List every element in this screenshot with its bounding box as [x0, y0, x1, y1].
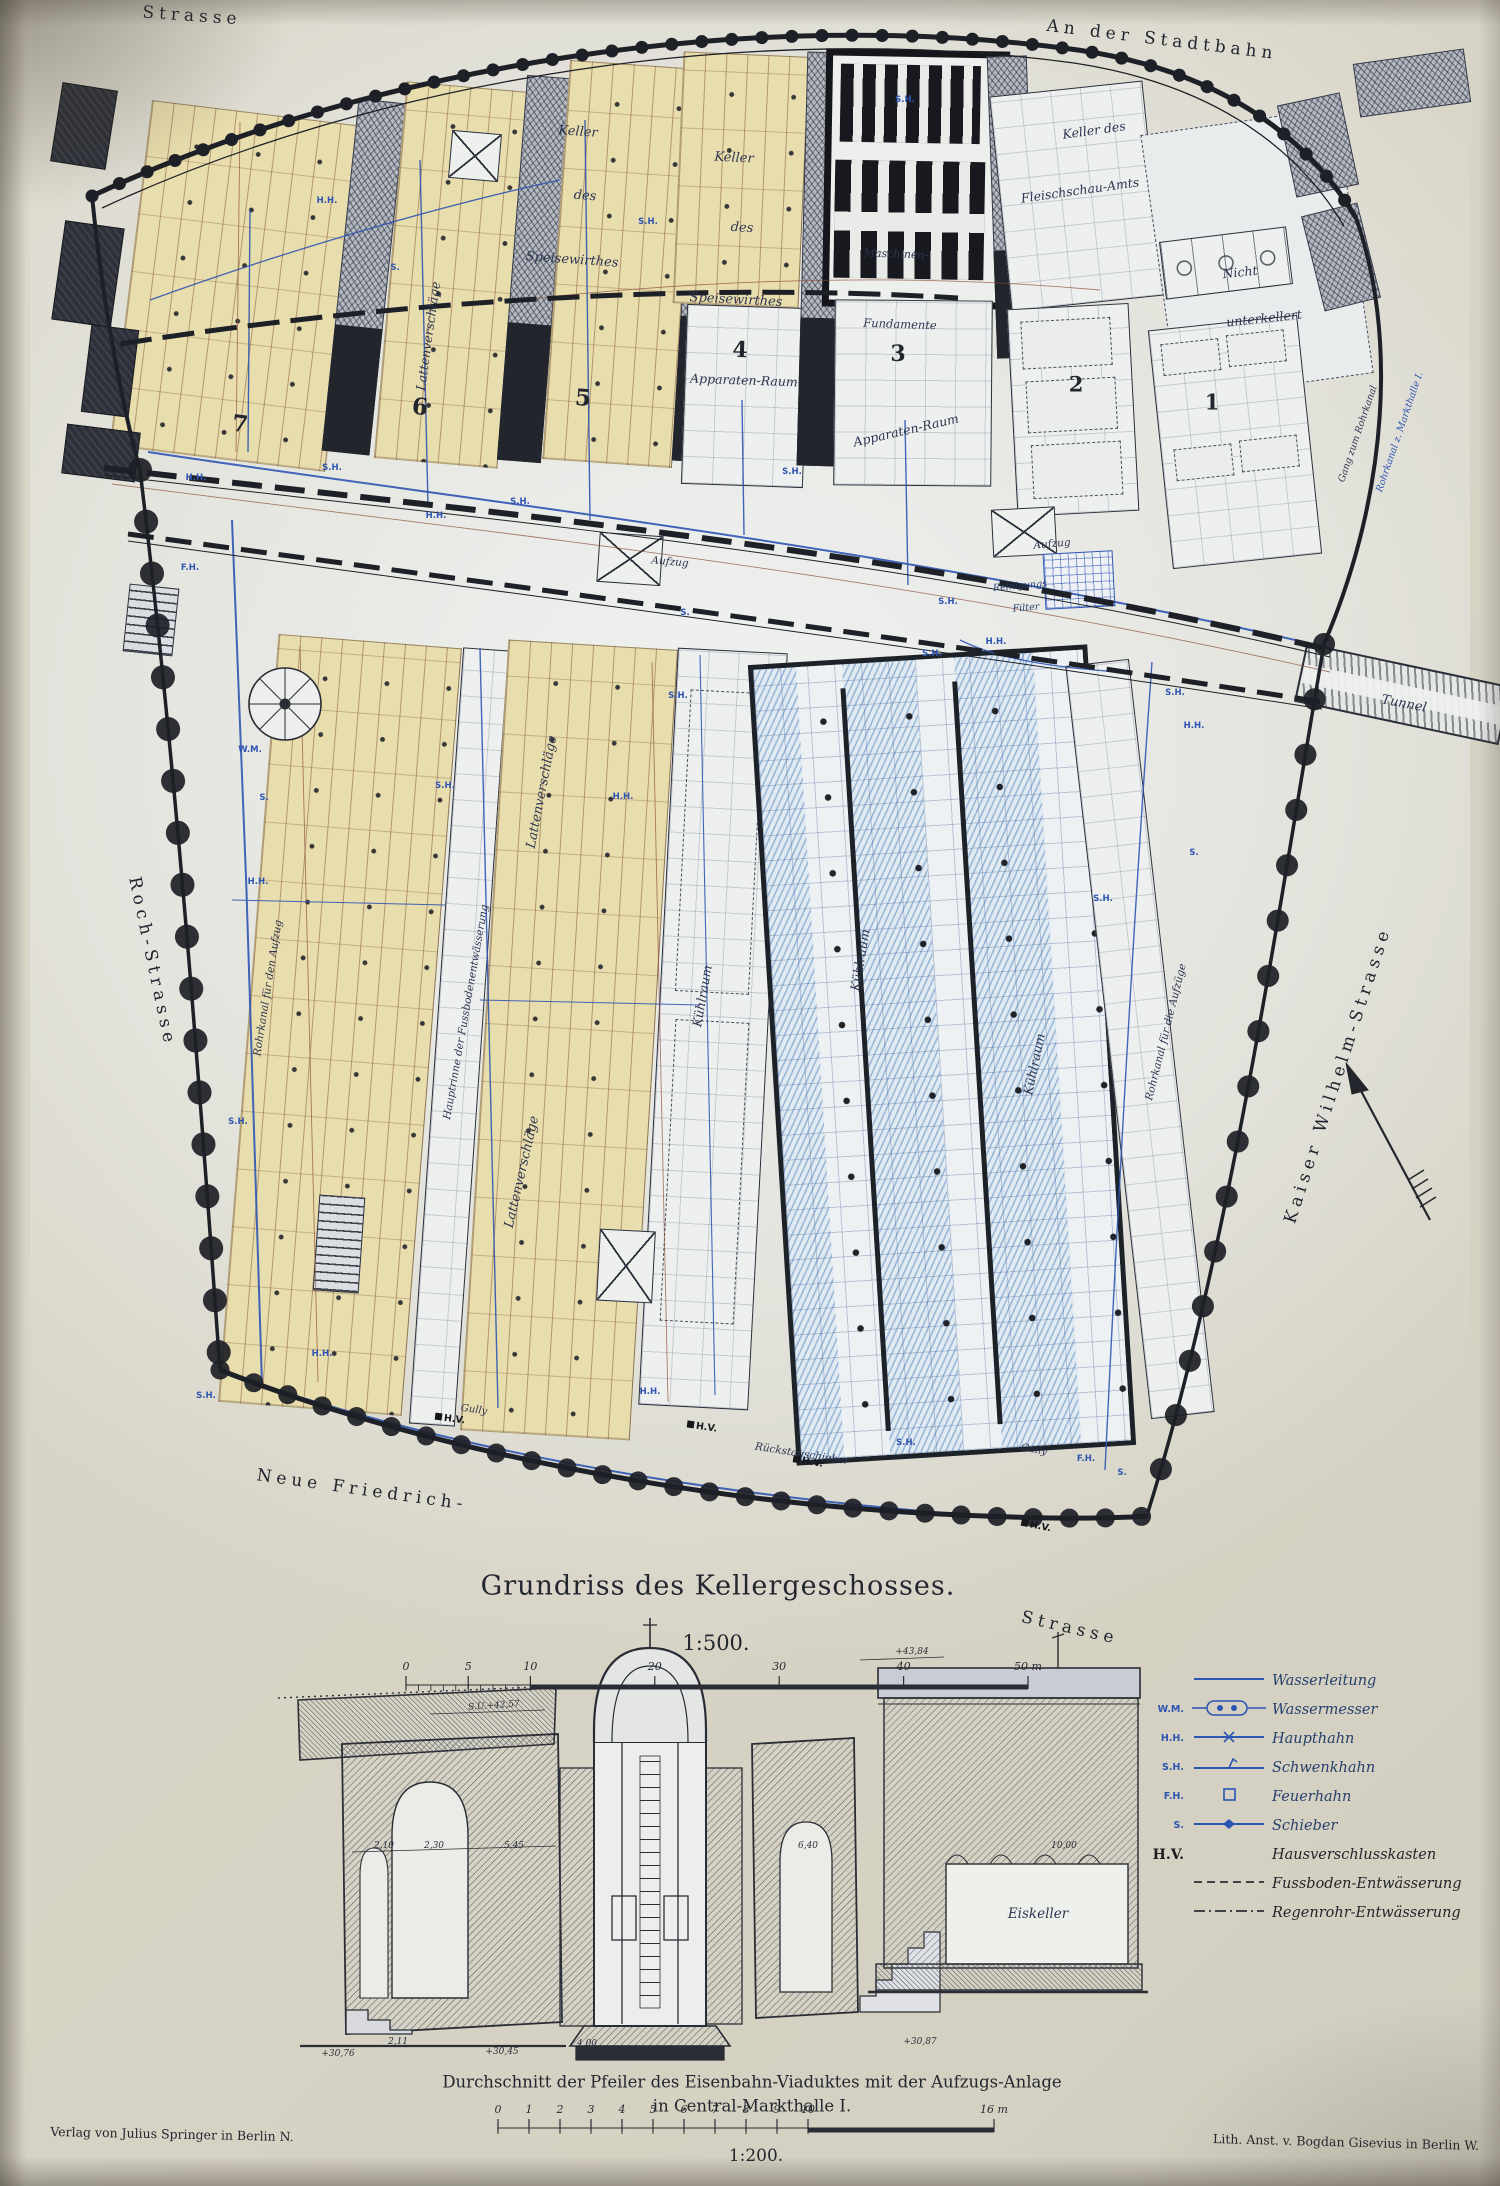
legend-symbol-dash — [1190, 1873, 1272, 1895]
pipe-marker-sh: S.H. — [228, 1117, 248, 1127]
label-eiskeller: Eiskeller — [1008, 1906, 1068, 1922]
room-number-1: 1 — [1205, 390, 1220, 415]
label-keller-1: Keller — [558, 123, 598, 141]
elevation-su-42-57: S.U.+42,57 — [468, 1699, 520, 1713]
svg-text:6: 6 — [681, 2103, 688, 2116]
pipe-marker-wm: W.M. — [238, 745, 262, 755]
pipe-marker-sh: S.H. — [322, 463, 342, 473]
svg-text:10: 10 — [801, 2103, 815, 2116]
plan-scale-text: 1:500. — [682, 1631, 749, 1655]
label-speisewirthes-2: Speisewirthes — [689, 290, 783, 310]
dim-4-00: 4,00 — [577, 2039, 597, 2049]
marker-hv-1: H.V. — [686, 1419, 718, 1434]
pipe-marker-fh: F.H. — [1077, 1454, 1095, 1464]
legend-row: Fussboden-Entwässerung — [1146, 1869, 1482, 1898]
svg-text:10: 10 — [523, 1660, 537, 1673]
room-number-5: 5 — [574, 384, 592, 412]
legend-row: S.H.Schwenkhahn — [1146, 1753, 1482, 1782]
label-kuehlraum-3: Kühlraum — [1020, 1032, 1048, 1096]
legend-abbr: H.H. — [1146, 1733, 1190, 1744]
street-roch-strasse: Roch-Strasse — [124, 875, 180, 1049]
label-speisewirthes-1: Speisewirthes — [525, 249, 619, 270]
dim-5-45: 5,45 — [504, 1841, 524, 1851]
pipe-marker-sh: S.H. — [510, 497, 530, 507]
legend-label: Feuerhahn — [1272, 1789, 1482, 1805]
svg-text:9: 9 — [774, 2103, 781, 2116]
legend-row: Wasserleitung — [1146, 1666, 1482, 1695]
label-fleischschau-amts: Fleischschau-Amts — [1020, 174, 1140, 205]
label-rohrkanal-aufzug: Rohrkanal für den Aufzug — [251, 919, 284, 1057]
pipe-marker-hh: H.H. — [986, 637, 1007, 647]
pipe-marker-fh: F.H. — [181, 563, 199, 573]
label-apparaten-raum-4: Apparaten-Raum — [690, 371, 798, 390]
svg-text:30: 30 — [772, 1660, 786, 1673]
lithograph-sheet: StrasseAn der StadtbahnRoch-StrasseKaise… — [0, 0, 1500, 2186]
dim-2-11: 2,11 — [388, 2037, 408, 2047]
legend-label: Regenrohr-Entwässerung — [1272, 1905, 1482, 1921]
pipe-marker-s: S. — [259, 793, 268, 803]
pipe-marker-sh: S.H. — [896, 1438, 916, 1448]
label-des-1: des — [573, 188, 597, 205]
label-rohrkanal-markthalle: Rohrkanal z. Markthalle I. — [1374, 370, 1426, 493]
legend-symbol-diamond — [1190, 1815, 1272, 1837]
svg-text:0: 0 — [403, 1660, 410, 1673]
street-neue-friedrich: Neue Friedrich- — [255, 1465, 468, 1514]
elevation-30-45: +30,45 — [485, 2047, 518, 2057]
svg-text:2: 2 — [556, 2103, 564, 2116]
svg-text:5: 5 — [650, 2103, 657, 2116]
pipe-marker-hh: H.H. — [317, 196, 338, 206]
room-number-3: 3 — [890, 341, 905, 367]
pipe-marker-sh: S.H. — [938, 597, 958, 607]
legend-abbr: S.H. — [1146, 1762, 1190, 1773]
pipe-marker-s: S. — [390, 263, 399, 273]
legend-symbol-valvex — [1190, 1728, 1272, 1750]
pipe-marker-hh: H.H. — [186, 473, 207, 483]
label-keller-2: Keller — [714, 149, 754, 166]
pipe-marker-sh: S.H. — [435, 781, 455, 791]
pipe-marker-sh: S.H. — [668, 691, 688, 701]
label-hauptrinne: Hauptrinne der Fussbodenentwässerung — [441, 904, 491, 1121]
legend-row: H.H.Haupthahn — [1146, 1724, 1482, 1753]
dim-6-40: 6,40 — [798, 1841, 818, 1851]
elevation-30-76: +30,76 — [321, 2049, 354, 2059]
legend-label: Schwenkhahn — [1272, 1760, 1482, 1776]
legend-label: Fussboden-Entwässerung — [1272, 1876, 1482, 1892]
pipe-marker-s: S. — [680, 608, 689, 618]
label-keller-des: Keller des — [1061, 118, 1126, 142]
room-number-7: 7 — [230, 410, 249, 439]
label-apparaten-raum-3: Apparaten-Raum — [852, 411, 960, 450]
label-rohrkanal-aufzuege: Rohrkanal für die Aufzüge — [1143, 962, 1189, 1101]
label-lattenverschlaege-b: Lattenverschläge — [524, 734, 561, 849]
label-fundamente: Fundamente — [863, 316, 937, 333]
label-kuehlraum-1: Kühlraum — [689, 964, 715, 1028]
section-scale-bar: 01234567891016 m — [490, 2098, 1014, 2146]
label-tunnel: Tunnel — [1380, 692, 1428, 715]
label-reinigungs: Reinigungs — [992, 578, 1047, 594]
svg-text:5: 5 — [465, 1660, 472, 1673]
pipe-marker-hh: H.H. — [312, 1349, 333, 1359]
legend-symbol-none — [1190, 1844, 1272, 1866]
plan-title: Grundriss des Kellergeschosses. — [481, 1571, 956, 1602]
label-gully-2: Gully — [1020, 1442, 1048, 1457]
legend-row: H.V.Hausverschlusskasten — [1146, 1840, 1482, 1869]
dim-2-30: 2,30 — [424, 1841, 444, 1851]
dim-2-10: 2,10 — [374, 1841, 394, 1851]
legend-abbr: W.M. — [1146, 1704, 1190, 1715]
legend-row: F.H.Feuerhahn — [1146, 1782, 1482, 1811]
label-nicht: Nicht — [1222, 263, 1258, 282]
svg-text:1: 1 — [526, 2103, 533, 2116]
legend-symbol-flag — [1190, 1757, 1272, 1779]
svg-text:8: 8 — [743, 2103, 750, 2116]
pipe-marker-hh: H.H. — [613, 792, 634, 802]
label-unterkellert: unterkellert — [1225, 307, 1302, 330]
label-des-2: des — [730, 220, 753, 236]
legend-row: W.M.Wassermesser — [1146, 1695, 1482, 1724]
label-lattenverschlaege-c: Lattenverschläge — [502, 1115, 542, 1230]
plan-scale-bar: 051020304050 m — [398, 1655, 1048, 1701]
legend-label: Hausverschlusskasten — [1272, 1847, 1482, 1863]
street-an-der-stadtbahn: An der Stadtbahn — [1045, 16, 1278, 64]
marker-hv-4: H.V. — [434, 1412, 465, 1427]
street-kaiser-wilhelm: Kaiser Wilhelm-Strasse — [1280, 924, 1395, 1226]
label-kuehlraum-2: Kühlraum — [847, 928, 873, 992]
svg-text:20: 20 — [647, 1660, 662, 1673]
svg-text:7: 7 — [712, 2103, 719, 2116]
legend-label: Wasserleitung — [1272, 1673, 1482, 1689]
legend-abbr: F.H. — [1146, 1791, 1190, 1802]
pipe-marker-sh: S.H. — [1165, 688, 1185, 698]
legend-symbol-meter — [1190, 1699, 1272, 1721]
street-strasse-bottom: Strasse — [1019, 1607, 1120, 1649]
svg-text:50 m: 50 m — [1014, 1660, 1042, 1673]
legend-row: Regenrohr-Entwässerung — [1146, 1898, 1482, 1927]
legend: WasserleitungW.M.WassermesserH.H.Hauptha… — [1146, 1666, 1482, 1927]
pipe-marker-s: S. — [1117, 1468, 1126, 1478]
room-number-2: 2 — [1069, 372, 1084, 397]
pipe-marker-hh: H.H. — [248, 877, 269, 887]
label-lattenverschlaege-a: Lattenverschläge — [413, 280, 443, 391]
svg-text:4: 4 — [618, 2103, 626, 2116]
svg-text:16 m: 16 m — [980, 2103, 1008, 2116]
label-gang-zum-rohrkanal: Gang zum Rohrkanal — [1336, 384, 1379, 483]
legend-symbol-sq — [1190, 1786, 1272, 1808]
label-aufzug-1: Aufzug — [651, 554, 689, 569]
legend-row: S.Schieber — [1146, 1811, 1482, 1840]
label-aufzug-2: Aufzug — [1033, 536, 1071, 551]
label-filter: Filter — [1012, 601, 1040, 614]
svg-text:3: 3 — [588, 2103, 595, 2116]
dim-10-00: 10,00 — [1051, 1841, 1077, 1851]
legend-label: Haupthahn — [1272, 1731, 1482, 1747]
legend-label: Schieber — [1272, 1818, 1482, 1834]
pipe-marker-sh: S.H. — [782, 467, 802, 477]
pipe-marker-hh: H.H. — [1184, 721, 1205, 731]
svg-text:40: 40 — [896, 1660, 911, 1673]
pipe-marker-hh: H.H. — [640, 1387, 661, 1397]
marker-hv-3: H.V. — [1020, 1518, 1052, 1535]
pipe-marker-sh: S.H. — [196, 1391, 216, 1401]
pipe-marker-hh: H.H. — [426, 511, 447, 521]
section-scale-text: 1:200. — [729, 2146, 783, 2166]
pipe-marker-sh: S.H. — [895, 95, 915, 105]
pipe-marker-sh: S.H. — [922, 649, 942, 659]
pipe-marker-sh: S.H. — [1093, 894, 1113, 904]
section-title-line1: Durchschnitt der Pfeiler des Eisenbahn-V… — [442, 2073, 1061, 2092]
legend-abbr: H.V. — [1146, 1847, 1190, 1863]
room-number-4: 4 — [732, 337, 748, 364]
pipe-marker-sh: S.H. — [638, 217, 658, 227]
room-number-6: 6 — [411, 393, 429, 421]
pipe-marker-s: S. — [1189, 848, 1198, 858]
legend-symbol-line — [1190, 1670, 1272, 1692]
legend-abbr: S. — [1146, 1820, 1190, 1831]
legend-symbol-dashdot — [1190, 1902, 1272, 1924]
street-strasse-top: Strasse — [142, 3, 242, 30]
svg-text:0: 0 — [495, 2103, 502, 2116]
label-maschinen: Maschinen- — [863, 246, 928, 261]
elevation-30-87: +30,87 — [903, 2037, 936, 2047]
legend-label: Wassermesser — [1272, 1702, 1482, 1718]
